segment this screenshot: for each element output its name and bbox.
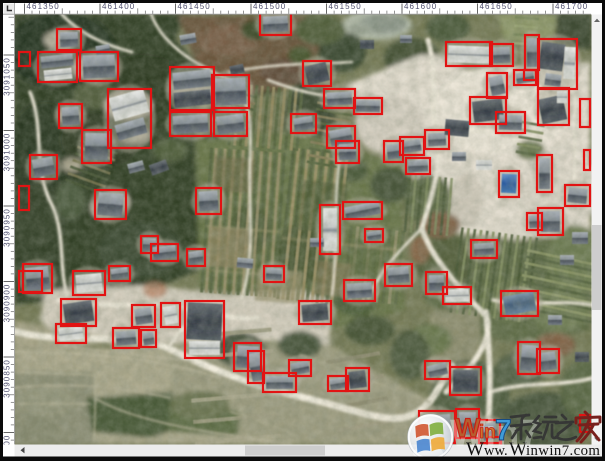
svg-text:461700: 461700 (555, 2, 588, 11)
svg-text:3090850: 3090850 (3, 359, 12, 398)
svg-text:in: in (479, 422, 496, 443)
svg-text:461450: 461450 (178, 2, 211, 11)
svg-text:461550: 461550 (329, 2, 362, 11)
svg-text:3090950: 3090950 (3, 208, 12, 247)
svg-text:7: 7 (495, 414, 512, 447)
svg-text:461350: 461350 (27, 2, 60, 11)
svg-text:461600: 461600 (404, 2, 437, 11)
svg-text:461500: 461500 (253, 2, 286, 11)
svg-text:3091000: 3091000 (3, 133, 12, 172)
svg-text:3091050: 3091050 (3, 57, 12, 96)
svg-text:461400: 461400 (102, 2, 135, 11)
svg-text:3090900: 3090900 (3, 284, 12, 323)
svg-text:461650: 461650 (480, 2, 513, 11)
svg-text:W: W (455, 413, 481, 443)
